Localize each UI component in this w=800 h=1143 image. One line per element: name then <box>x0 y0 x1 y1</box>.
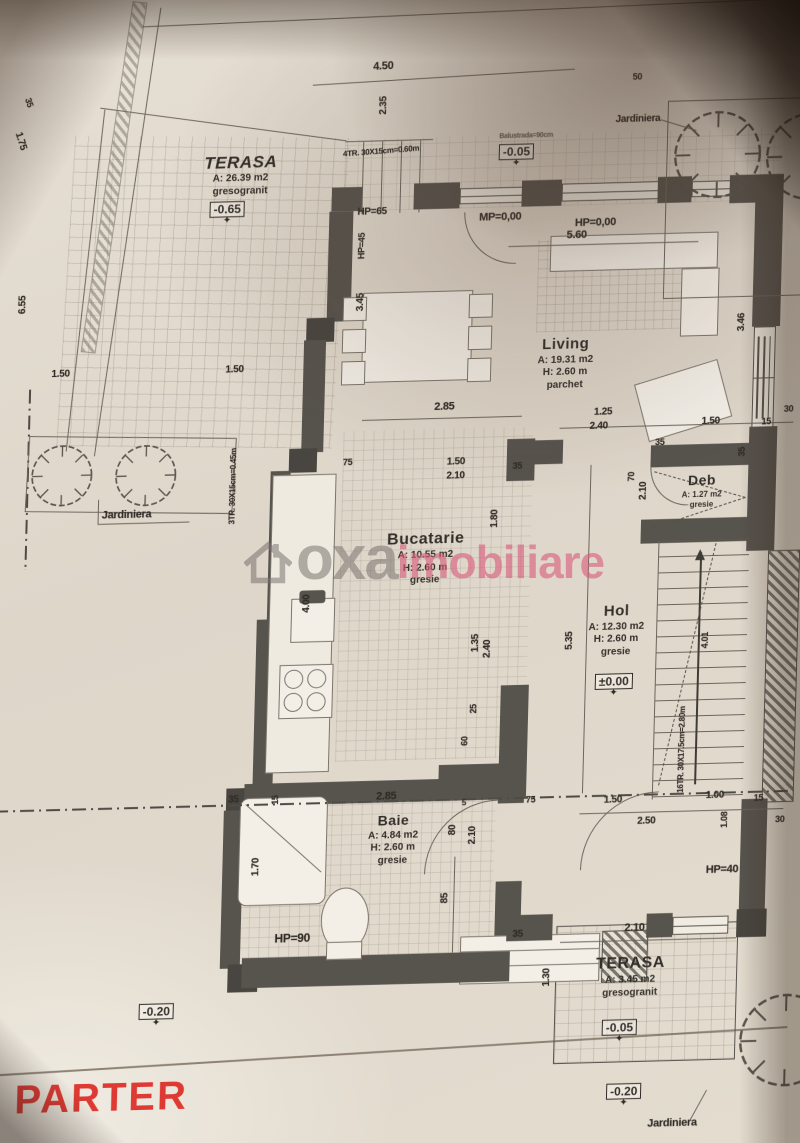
dining-table <box>361 290 473 383</box>
header-label: HP=90 <box>274 930 310 945</box>
jardiniera-left-label: Jardiniera <box>102 508 152 521</box>
dim-label: 5.60 <box>566 229 587 242</box>
dim-label: 1.50 <box>51 369 70 380</box>
wall-right-stair-hatch <box>762 550 800 803</box>
stair-label: 3TR. 30X15cm=0.45m <box>227 440 243 524</box>
dim-label: 25 <box>468 704 478 714</box>
dim-label: 1.50 <box>701 416 720 427</box>
dim-label: 75 <box>526 795 536 805</box>
chair <box>468 325 493 350</box>
dim-label: 85 <box>439 893 450 904</box>
dim-label: 5.35 <box>564 631 575 650</box>
tree-icon <box>734 989 800 1092</box>
level-marker: ±0.00 ✦ <box>594 672 633 697</box>
dim-label: 6.55 <box>17 296 28 315</box>
room-terasa-bottom: TERASA A: 3.45 m2 gresogranit <box>565 952 696 1000</box>
dim-label: 15 <box>270 795 280 805</box>
dim-label: 2.40 <box>589 421 608 432</box>
dim-label: 2.85 <box>376 790 397 803</box>
dim-label: 1.00 <box>706 790 725 801</box>
tree-icon <box>761 108 800 205</box>
tree-icon <box>28 442 96 510</box>
dim-label: 1.50 <box>225 364 244 375</box>
dim-label: 35 <box>512 461 522 471</box>
dim-label: 2.35 <box>378 96 389 115</box>
stair-label: 4.01 <box>700 632 710 649</box>
dim-label: 2.10 <box>624 922 645 935</box>
header-label: HP=65 <box>357 206 387 218</box>
dim-label: 35 <box>228 794 239 805</box>
dim-label: 5 <box>462 798 466 807</box>
dim-label: 1.35 <box>470 634 481 653</box>
wall-corner-2 <box>289 448 318 473</box>
dim-label: 1.30 <box>541 968 552 987</box>
dim-label: 2.10 <box>467 826 478 845</box>
level-pin-icon: ✦ <box>594 690 632 697</box>
wall-corner-se <box>736 909 767 938</box>
dim-label: 3.45 <box>355 293 366 312</box>
window-entry <box>672 916 728 935</box>
floorplan-photo: Jardiniera Jardiniera Jardiniera 4.50 50… <box>0 0 800 1143</box>
wall-left-2 <box>301 340 326 453</box>
dim-label: 30 <box>784 404 794 414</box>
dim-label: 35 <box>655 437 665 447</box>
wall-right-3 <box>739 798 768 917</box>
level-pin-icon: ✦ <box>138 1020 174 1027</box>
floorplan-drawing: Jardiniera Jardiniera Jardiniera 4.50 50… <box>0 0 800 1143</box>
dim-label: 35 <box>737 447 747 457</box>
dim-label: 15 <box>754 793 764 803</box>
dim-label: 70 <box>626 472 636 482</box>
level-pin-icon: ✦ <box>498 160 534 167</box>
dim-label: 2.40 <box>482 640 493 659</box>
header-label: HP=45 <box>356 233 367 260</box>
jardiniera-left-leader2 <box>97 521 189 525</box>
chair <box>469 293 494 318</box>
dim-label: 60 <box>459 736 469 746</box>
dim-label: 75 <box>343 457 353 467</box>
wall-corner-1 <box>306 318 335 343</box>
toilet-tank <box>326 941 362 960</box>
window-top1 <box>460 187 524 205</box>
dim-label: 2.10 <box>638 481 649 500</box>
dim-label: 1.50 <box>604 794 623 805</box>
wall-entry-2 <box>646 913 673 938</box>
level-pin-icon: ✦ <box>209 218 245 225</box>
dim-label: 1.70 <box>250 858 261 877</box>
dim-label: 4.50 <box>373 60 393 73</box>
dim-label: 1.75 <box>13 131 29 152</box>
window-top2 <box>561 181 659 202</box>
wall-livhol-1 <box>519 440 564 465</box>
level-marker: -0.05 ✦ <box>498 142 534 167</box>
balustrade-label: Balustrada=90cm <box>499 132 553 140</box>
dim-label: 30 <box>775 814 785 824</box>
radiator <box>756 336 771 418</box>
dim-label: 1.80 <box>489 509 500 528</box>
tree-icon <box>112 442 180 510</box>
room-name: Deb <box>662 471 742 491</box>
dim-label: 35 <box>23 96 35 108</box>
dim-label: 50 <box>633 71 643 81</box>
dim-label: 15 <box>761 416 771 426</box>
level-pin-icon: ✦ <box>606 1100 642 1107</box>
jardiniera-top-label: Jardiniera <box>615 113 660 125</box>
wall-top-pier2 <box>413 182 460 209</box>
tree-icon <box>669 106 765 203</box>
dim-line <box>362 416 522 421</box>
jardiniera-bottom-leader <box>689 1090 707 1121</box>
dim-label: 35 <box>512 929 523 940</box>
dim-label: 2.50 <box>637 815 656 826</box>
dim-line <box>313 69 575 86</box>
chair <box>342 329 367 354</box>
stair-arrow-icon <box>695 544 705 560</box>
header-label: HP=40 <box>706 863 739 876</box>
paper-top-line <box>143 0 800 27</box>
dim-label: 2.10 <box>446 470 465 481</box>
kitchen-sink <box>290 598 335 643</box>
header-label: MP=0,00 <box>479 211 522 224</box>
level-marker: -0.20 ✦ <box>606 1082 642 1107</box>
level-pin-icon: ✦ <box>601 1036 637 1043</box>
dim-label: 1.50 <box>447 456 466 467</box>
dim-label: 1.08 <box>719 811 729 828</box>
dim-label: 1.25 <box>594 406 613 417</box>
room-floor: gresie <box>661 499 741 511</box>
room-terasa-top: TERASA A: 26.39 m2 gresogranit <box>160 150 321 200</box>
room-floor: parchet <box>505 378 625 394</box>
armchair <box>634 359 732 442</box>
wall-top-pier3 <box>521 180 562 207</box>
room-bucatarie: Bucatarie A: 10.55 m2 H: 2.60 m gresie <box>360 528 491 589</box>
room-living: Living A: 19.31 m2 H: 2.60 m parchet <box>505 334 626 393</box>
level-marker: -0.65 ✦ <box>209 200 245 225</box>
chair <box>341 361 366 386</box>
level-marker: -0.20 ✦ <box>138 1002 174 1027</box>
dim-label: 4.00 <box>301 594 312 613</box>
level-marker: -0.05 ✦ <box>601 1018 637 1043</box>
header-label: HP=0,00 <box>575 216 616 229</box>
plan-title: PARTER <box>14 1074 189 1124</box>
room-deb: Deb A: 1.27 m2 gresie <box>661 471 742 511</box>
chair <box>467 358 492 383</box>
dim-label: 3.46 <box>736 313 747 332</box>
shower <box>237 796 328 906</box>
room-baie: Baie A: 4.84 m2 H: 2.60 m gresie <box>332 811 453 869</box>
dim-label: 2.85 <box>434 401 455 414</box>
